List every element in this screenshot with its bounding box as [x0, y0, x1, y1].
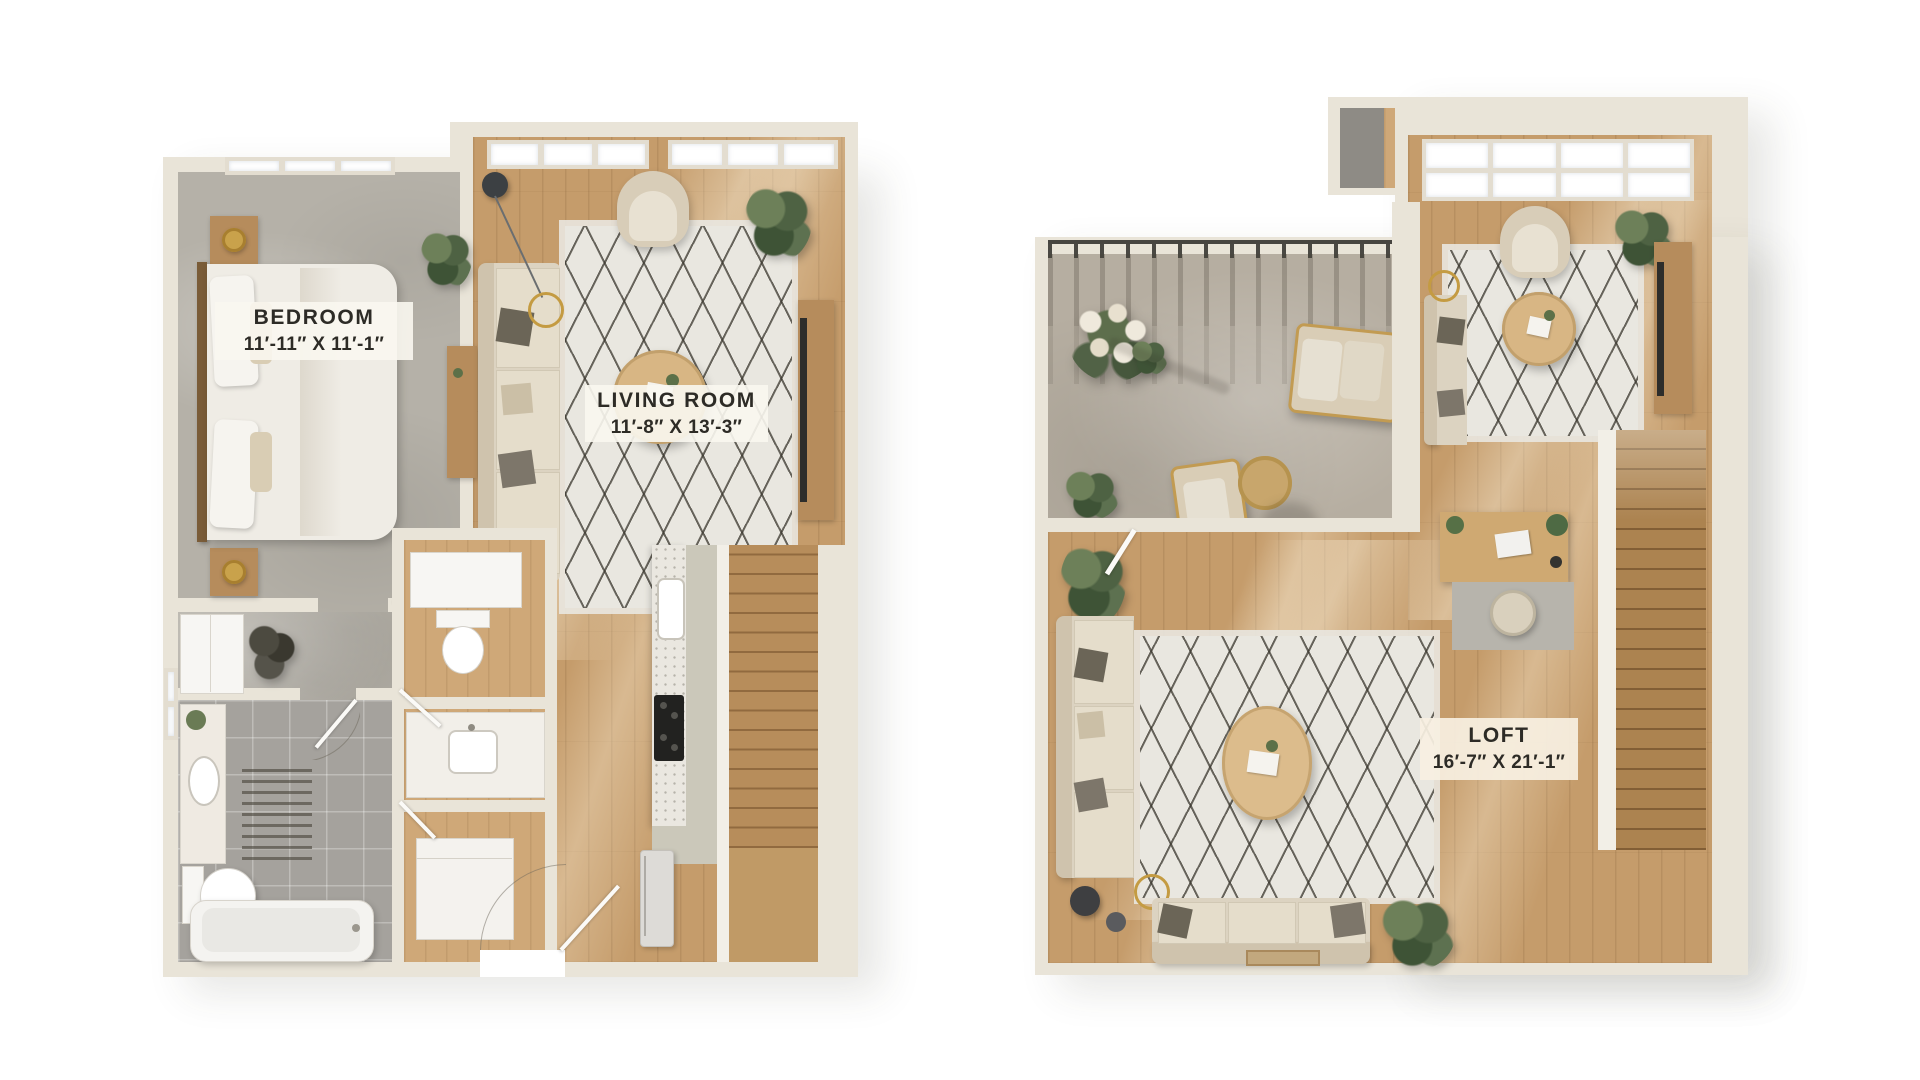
second-floor-plan: LOFT 16′-7″ X 21′-1″ [0, 0, 1920, 1080]
skylight-pane [1426, 143, 1488, 168]
terrace-loft-wall [1035, 518, 1408, 532]
skylight-pane [1628, 143, 1690, 168]
loft-dimensions: 16′-7″ X 21′-1″ [1433, 750, 1566, 776]
loft-plant-top [1060, 538, 1126, 626]
den-tv-screen [1657, 262, 1664, 396]
terrace-den-wall [1392, 202, 1420, 532]
loft-throw-pillow [1074, 648, 1109, 683]
loft-table-book [1247, 750, 1280, 776]
skylight-pane [1493, 143, 1555, 168]
loft-label: LOFT 16′-7″ X 21′-1″ [1420, 718, 1578, 780]
side-table-small [1106, 912, 1126, 932]
desk-lamp [1550, 556, 1562, 568]
sectional-back [1056, 616, 1072, 878]
desk-plant [1446, 516, 1464, 534]
den-sofa-back [1424, 295, 1437, 445]
side-table [1070, 886, 1100, 916]
stairwell-edge [1384, 108, 1395, 188]
den-table-plant [1544, 310, 1555, 321]
skylight-pane [1628, 173, 1690, 198]
den-armchair-seat [1512, 224, 1558, 272]
doormat [1246, 950, 1320, 966]
stair-light [1616, 430, 1706, 520]
den-throw-pillow [1437, 317, 1466, 346]
desk-plant [1546, 514, 1568, 536]
laptop [1494, 530, 1531, 558]
fiddle-leaf-plant [1378, 894, 1456, 970]
loft-stair-wall [1598, 430, 1616, 850]
loft-table-plant [1266, 740, 1278, 752]
terrace-bush [1062, 468, 1120, 520]
den-throw-pillow [1437, 389, 1466, 418]
skylight-pane [1493, 173, 1555, 198]
loveseat-cushion [1339, 340, 1385, 402]
skylight-pane [1561, 173, 1623, 198]
bottom-sofa-pillow [1157, 903, 1193, 939]
floor-plan-canvas: BEDROOM 11′-11″ X 11′-1″ LIVING ROOM 11′… [0, 0, 1920, 1080]
den-skylight [1422, 139, 1694, 201]
bottom-sofa-cushion [1228, 902, 1296, 944]
loft-name: LOFT [1468, 722, 1529, 750]
bottom-sofa-pillow [1330, 902, 1366, 938]
skylight-pane [1561, 143, 1623, 168]
stairwell-void [1340, 108, 1384, 188]
desk-chair [1490, 590, 1536, 636]
loveseat-cushion [1297, 338, 1343, 402]
loft-throw-pillow [1074, 778, 1109, 813]
skylight-pane [1426, 173, 1488, 198]
den-floor-lamp [1428, 270, 1460, 302]
loft-throw-pillow [1077, 711, 1106, 740]
